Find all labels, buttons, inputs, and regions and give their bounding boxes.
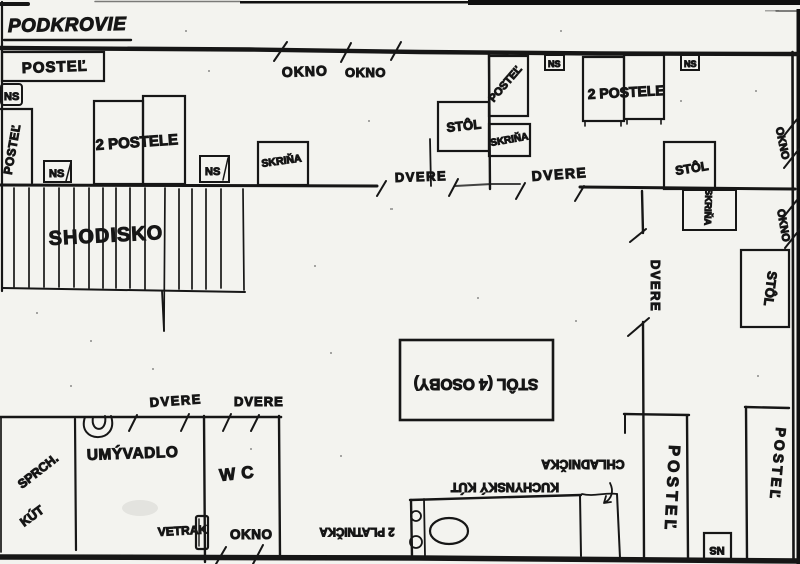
svg-text:POSTEĽ: POSTEĽ bbox=[1, 123, 24, 176]
svg-text:OKNO: OKNO bbox=[774, 208, 792, 243]
svg-text:DVERE: DVERE bbox=[648, 260, 663, 312]
svg-text:DVERE: DVERE bbox=[395, 168, 448, 185]
svg-text:OKNO: OKNO bbox=[345, 65, 386, 80]
svg-text:SKRIŇA: SKRIŇA bbox=[489, 129, 529, 148]
svg-text:STÔL: STÔL bbox=[674, 158, 710, 178]
svg-text:2 POSTELE: 2 POSTELE bbox=[95, 131, 179, 154]
svg-text:NS: NS bbox=[548, 59, 561, 69]
svg-text:STÔL: STÔL bbox=[761, 270, 780, 306]
svg-text:NS: NS bbox=[49, 168, 64, 180]
svg-text:NS: NS bbox=[205, 166, 220, 178]
svg-text:NS: NS bbox=[4, 91, 19, 103]
svg-text:POSTEĽ: POSTEĽ bbox=[487, 63, 525, 104]
svg-text:SHODISKO: SHODISKO bbox=[48, 222, 164, 250]
svg-text:POSTEĽ: POSTEĽ bbox=[661, 445, 683, 534]
svg-text:STÔL (4 OSOBY): STÔL (4 OSOBY) bbox=[414, 375, 539, 393]
svg-text:DVERE: DVERE bbox=[149, 391, 202, 410]
svg-text:OKNO: OKNO bbox=[282, 62, 329, 80]
svg-text:POSTEĽ: POSTEĽ bbox=[22, 58, 89, 77]
svg-text:DVERE: DVERE bbox=[234, 394, 284, 409]
svg-text:UMÝVADLO: UMÝVADLO bbox=[87, 443, 179, 464]
svg-text:OKNO: OKNO bbox=[230, 527, 273, 542]
svg-text:2 POSTELE: 2 POSTELE bbox=[587, 82, 665, 102]
svg-text:PODKROVIE: PODKROVIE bbox=[8, 14, 128, 37]
svg-text:KUCHYNSKÝ KÚT: KUCHYNSKÝ KÚT bbox=[450, 480, 559, 495]
svg-text:POSTEĽ: POSTEĽ bbox=[767, 427, 789, 502]
svg-text:SPRCH.: SPRCH. bbox=[15, 451, 61, 491]
svg-text:2 PLATNIČKA: 2 PLATNIČKA bbox=[319, 525, 394, 538]
svg-text:NS: NS bbox=[684, 59, 697, 69]
svg-text:STÔL: STÔL bbox=[446, 116, 482, 135]
svg-text:CHLADNIČKA: CHLADNIČKA bbox=[541, 457, 624, 472]
svg-text:SKRIŇA: SKRIŇA bbox=[701, 189, 714, 226]
svg-text:NS: NS bbox=[709, 544, 724, 556]
svg-text:DVERE: DVERE bbox=[531, 164, 588, 184]
svg-text:SKRIŇA: SKRIŇA bbox=[261, 151, 303, 170]
svg-text:WC: WC bbox=[218, 462, 260, 485]
svg-text:VETRAK: VETRAK bbox=[157, 522, 207, 539]
svg-text:KÚT: KÚT bbox=[17, 502, 47, 529]
